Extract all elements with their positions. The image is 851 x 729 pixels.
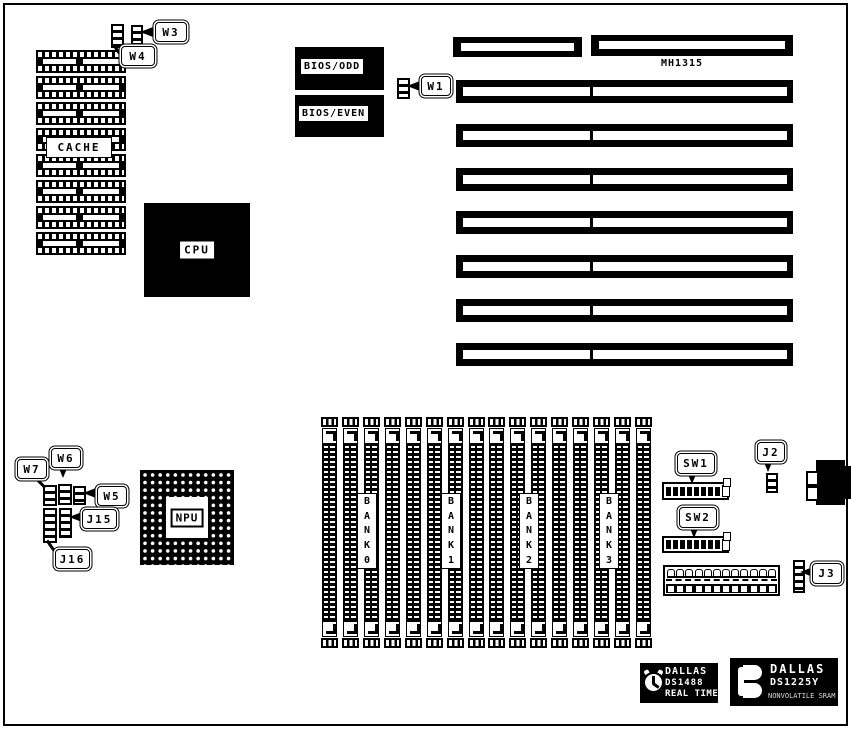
bank-letter: 3 [606,555,612,566]
callout-j15: J15 [82,509,117,529]
simm-bottom-cap [384,638,401,648]
memory-bank-area: BANK0BANK1BANK2BANK3 [321,417,653,648]
power-pin [741,586,747,592]
bank-letter: B [606,496,612,507]
simm-clip [469,621,484,637]
simm-bottom-cap [363,638,380,648]
expansion-slot [456,255,793,278]
chip-pin-row [38,78,124,83]
dip-switch-body [664,484,727,498]
simm-socket [405,417,422,648]
slot-contact-strip [593,350,787,359]
chip-pin-row [38,52,124,57]
power-connector-pins-top [667,567,776,578]
simm-socket [635,417,652,648]
slot-contact-strip [599,41,785,49]
simm-clip [406,621,421,637]
bank-label-3: BANK3 [599,493,619,569]
bank-letter: K [526,540,532,551]
simm-clip [448,428,463,444]
chip-window [83,111,119,116]
chip-window [43,241,76,246]
callout-w7: W7 [17,459,47,479]
simm-top-cap [363,417,380,427]
cache-label: CACHE [46,137,112,158]
simm-contact-column [408,446,412,619]
simm-contact-column [575,446,579,619]
simm-top-cap [426,417,443,427]
simm-socket [488,417,505,648]
slot-contact-strip [593,218,787,227]
power-pin [696,586,702,592]
chip-window [83,241,119,246]
power-pin [731,569,739,576]
dallas-logo-icon [738,665,764,699]
simm-contact-column [497,446,502,619]
power-pin [722,569,730,576]
power-connector-pins-bottom [666,584,777,593]
jumper-w7 [43,485,57,506]
simm-clip [448,621,463,637]
expansion-slot [456,168,793,191]
dip-position-on [715,487,720,496]
chip-window [43,189,76,194]
slot-contact-strip [593,262,787,271]
slot-contact-strip [593,131,787,140]
simm-bottom-cap [468,638,485,648]
chip-pin-row [38,92,124,97]
clock-icon [645,674,662,691]
bank-letter: B [364,496,370,507]
cache-chip [36,206,126,229]
dip-position-on [701,540,706,549]
chip-window [83,59,119,64]
bank-letter: B [448,496,454,507]
dip-position-on [701,487,706,496]
bank-letter: K [448,540,454,551]
simm-socket [384,417,401,648]
simm-top-cap [614,417,631,427]
power-pin [705,586,711,592]
power-pin [713,569,721,576]
simm-contact-column [351,446,356,619]
simm-clip [364,621,379,637]
rtc-part-number: DS1488 [665,678,704,688]
slot-contact-strip [593,306,787,315]
simm-contact-column [429,446,433,619]
power-connector [663,565,780,596]
simm-bottom-cap [572,638,589,648]
slot-contact-strip [463,218,590,227]
power-pin [750,569,758,576]
cache-chip [36,50,126,73]
simm-clip [322,621,337,637]
simm-contact-column [477,446,482,619]
chip-window [43,111,76,116]
simm-socket [551,417,568,648]
power-pin [714,586,720,592]
power-connector-divider [666,579,777,581]
simm-contact-column [623,446,628,619]
cache-chip-stack: CACHE [36,50,126,256]
simm-top-cap [342,417,359,427]
simm-contacts [573,444,588,621]
dallas-logo-icon [743,683,762,698]
simm-bottom-cap [321,638,338,648]
bios-even-chip: BIOS/EVEN [295,95,384,137]
keyboard-connector-pin [806,486,819,501]
slot-contact-strip [463,262,590,271]
dallas-logo-icon [743,665,762,680]
simm-contacts [385,444,400,621]
callout-j2: J2 [757,442,785,462]
simm-clip [594,428,609,444]
chip-window [83,189,119,194]
simm-contact-column [393,446,398,619]
simm-contacts [636,444,651,621]
chip-window [43,215,76,220]
simm-clip [531,428,546,444]
bank-label-2: BANK2 [519,493,539,569]
nvram-brand: DALLAS [770,662,825,676]
simm-clip [636,621,651,637]
dallas-nvram-chip: DALLAS DS1225Y NONVOLATILE SRAM [730,658,838,706]
dallas-rtc-chip: DALLAS DS1488 REAL TIME [640,663,718,703]
chip-pin-row [38,248,124,253]
callout-w6: W6 [51,448,81,468]
simm-contact-column [414,446,419,619]
slot-contact-strip [463,87,590,96]
power-pin [768,569,776,576]
simm-bottom-cap [614,638,631,648]
simm-contact-column [345,446,349,619]
slot-contact-strip [593,87,787,96]
dip-position-on [694,487,699,496]
simm-clip [427,621,442,637]
power-pin [685,569,693,576]
simm-socket [572,417,589,648]
simm-clip [615,428,630,444]
simm-clip [489,428,504,444]
bank-letter: A [364,511,370,522]
chip-pin-row [38,222,124,227]
dip-position-on [680,540,685,549]
simm-clip [636,428,651,444]
chip-window [83,85,119,90]
simm-clip [343,428,358,444]
simm-bottom-cap [426,638,443,648]
dip-switch-sw1 [662,482,729,500]
simm-contact-column [638,446,642,619]
dip-position-on [680,487,685,496]
keyboard-connector [806,452,851,510]
chip-window [43,163,76,168]
callout-j16: J16 [55,549,90,569]
simm-top-cap [405,417,422,427]
simm-top-cap [593,417,610,427]
simm-socket [468,417,485,648]
chip-pin-row [38,118,124,123]
simm-contact-column [491,446,495,619]
simm-clip [510,428,525,444]
bank-letter: A [448,511,454,522]
simm-contacts [406,444,421,621]
power-pin [704,569,712,576]
jumper-w6 [58,484,72,505]
simm-top-cap [509,417,526,427]
bank-letter: K [606,540,612,551]
motherboard-diagram: W3 W4 CACHE CPU BIOS/ODD BIOS/EVEN W1 MH… [0,0,851,729]
slot-contact-strip [463,175,590,184]
simm-bottom-cap [551,638,568,648]
w1-pointer [407,81,420,91]
simm-top-cap [384,417,401,427]
simm-clip [552,428,567,444]
cache-chip [36,102,126,125]
expansion-slot [456,80,793,103]
simm-top-cap [635,417,652,427]
simm-clip [343,621,358,637]
bank-letter: K [364,540,370,551]
keyboard-connector-edge [842,466,851,499]
simm-clip [510,621,525,637]
bank-letter: 1 [448,555,454,566]
nvram-type: NONVOLATILE SRAM [768,692,835,700]
power-pin [760,586,766,592]
npu-socket: NPU [140,470,234,565]
power-pin [740,569,748,576]
callout-w5: W5 [97,486,127,506]
simm-contacts [427,444,442,621]
simm-top-cap [321,417,338,427]
expansion-slot [456,211,793,234]
simm-clip [489,621,504,637]
power-pin [769,586,775,592]
bank-letter: N [448,525,454,536]
chip-pin-row [38,130,124,135]
dip-switch-notch [723,532,731,541]
header-j16 [43,508,57,543]
expansion-slot [456,299,793,322]
power-pin [759,569,767,576]
simm-contact-column [435,446,440,619]
simm-clip [552,621,567,637]
simm-clip [322,428,337,444]
nvram-part-number: DS1225Y [770,677,819,688]
power-pin [695,569,703,576]
simm-clip [469,428,484,444]
simm-contacts [322,444,337,621]
dip-switch-body [664,538,727,551]
simm-top-cap [488,417,505,427]
simm-contact-column [554,446,558,619]
chip-window [43,85,76,90]
callout-j3: J3 [812,563,842,584]
dip-position-on [708,487,713,496]
simm-contacts [343,444,358,621]
simm-contact-column [539,446,544,619]
bios-even-label: BIOS/EVEN [298,105,369,122]
bank-letter: B [526,496,532,507]
simm-contacts [489,444,504,621]
expansion-slot-segment [453,37,582,57]
callout-sw2: SW2 [679,507,717,528]
cache-chip [36,180,126,203]
keyboard-connector-pin [806,471,819,486]
simm-top-cap [530,417,547,427]
chip-pin-row [38,170,124,175]
dip-position-on [666,540,671,549]
simm-contacts [469,444,484,621]
simm-bottom-cap [405,638,422,648]
simm-bottom-cap [509,638,526,648]
chip-pin-row [38,208,124,213]
dip-switch-sw2 [662,536,729,553]
chip-pin-row [38,104,124,109]
npu-label: NPU [171,508,204,527]
simm-bottom-cap [488,638,505,648]
dip-position-on [687,487,692,496]
expansion-slot [456,124,793,147]
dip-position-on [673,487,678,496]
slot-contact-strip [463,131,590,140]
simm-clip [385,621,400,637]
board-part-number: MH1315 [648,58,716,69]
j15-pointer [69,512,82,522]
simm-contact-column [560,446,565,619]
bank-letter: N [606,525,612,536]
bank-letter: N [364,525,370,536]
bank-letter: A [526,511,532,522]
jumper-w4 [111,24,124,48]
chip-window [83,215,119,220]
simm-bottom-cap [342,638,359,648]
rtc-type: REAL TIME [665,689,718,699]
simm-contact-column [581,446,586,619]
dip-position-on [715,540,720,549]
dip-position-on [666,487,671,496]
simm-clip [615,621,630,637]
callout-w1: W1 [421,76,451,96]
chip-window [83,163,119,168]
callout-w4: W4 [121,46,155,66]
simm-clip [364,428,379,444]
chip-pin-row [38,66,124,71]
simm-contacts [552,444,567,621]
chip-pin-row [38,234,124,239]
bank-letter: 0 [364,555,370,566]
power-pin [732,586,738,592]
simm-bottom-cap [530,638,547,648]
expansion-slot-segment [591,35,793,56]
dip-position-on [694,540,699,549]
simm-bottom-cap [635,638,652,648]
power-pin [723,586,729,592]
power-pin [677,586,683,592]
slot-contact-strip [463,350,590,359]
simm-contact-column [324,446,328,619]
simm-clip [573,621,588,637]
simm-contact-column [644,446,649,619]
callout-w3: W3 [155,22,187,42]
w5-pointer [83,488,96,498]
dip-position-on [687,540,692,549]
simm-top-cap [572,417,589,427]
simm-contact-column [471,446,475,619]
expansion-slot [456,343,793,366]
dip-position-on [708,540,713,549]
power-pin [751,586,757,592]
chip-pin-row [38,196,124,201]
keyboard-connector-body [816,460,845,505]
power-pin [686,586,692,592]
bank-letter: A [606,511,612,522]
simm-bottom-cap [593,638,610,648]
bank-label-1: BANK1 [441,493,461,569]
cache-chip [36,232,126,255]
simm-clip [406,428,421,444]
cpu-label: CPU [180,242,214,259]
bank-label-0: BANK0 [357,493,377,569]
simm-clip [594,621,609,637]
power-pin [668,586,674,592]
simm-top-cap [447,417,464,427]
simm-clip [573,428,588,444]
simm-top-cap [551,417,568,427]
simm-clip [531,621,546,637]
bios-odd-chip: BIOS/ODD [295,47,384,90]
simm-contact-column [512,446,516,619]
slot-contact-strip [593,175,787,184]
bank-letter: 2 [526,555,532,566]
simm-clip [427,428,442,444]
callout-sw1: SW1 [677,453,715,474]
power-pin [667,569,675,576]
jumper-j2 [766,473,778,493]
cpu-chip: CPU [144,203,250,297]
bank-letter: N [526,525,532,536]
simm-top-cap [468,417,485,427]
cache-chip [36,76,126,99]
simm-contact-column [330,446,335,619]
dip-switch-notch [723,478,731,487]
simm-socket [321,417,338,648]
bios-odd-label: BIOS/ODD [300,58,364,75]
simm-contact-column [387,446,391,619]
w3-pointer [140,27,153,37]
clock-icon [657,669,663,675]
dip-position-on [673,540,678,549]
chip-window [43,59,76,64]
rtc-brand: DALLAS [665,666,707,677]
chip-pin-row [38,182,124,187]
simm-bottom-cap [447,638,464,648]
slot-contact-strip [461,43,574,51]
power-pin [676,569,684,576]
slot-contact-strip [463,306,590,315]
simm-clip [385,428,400,444]
